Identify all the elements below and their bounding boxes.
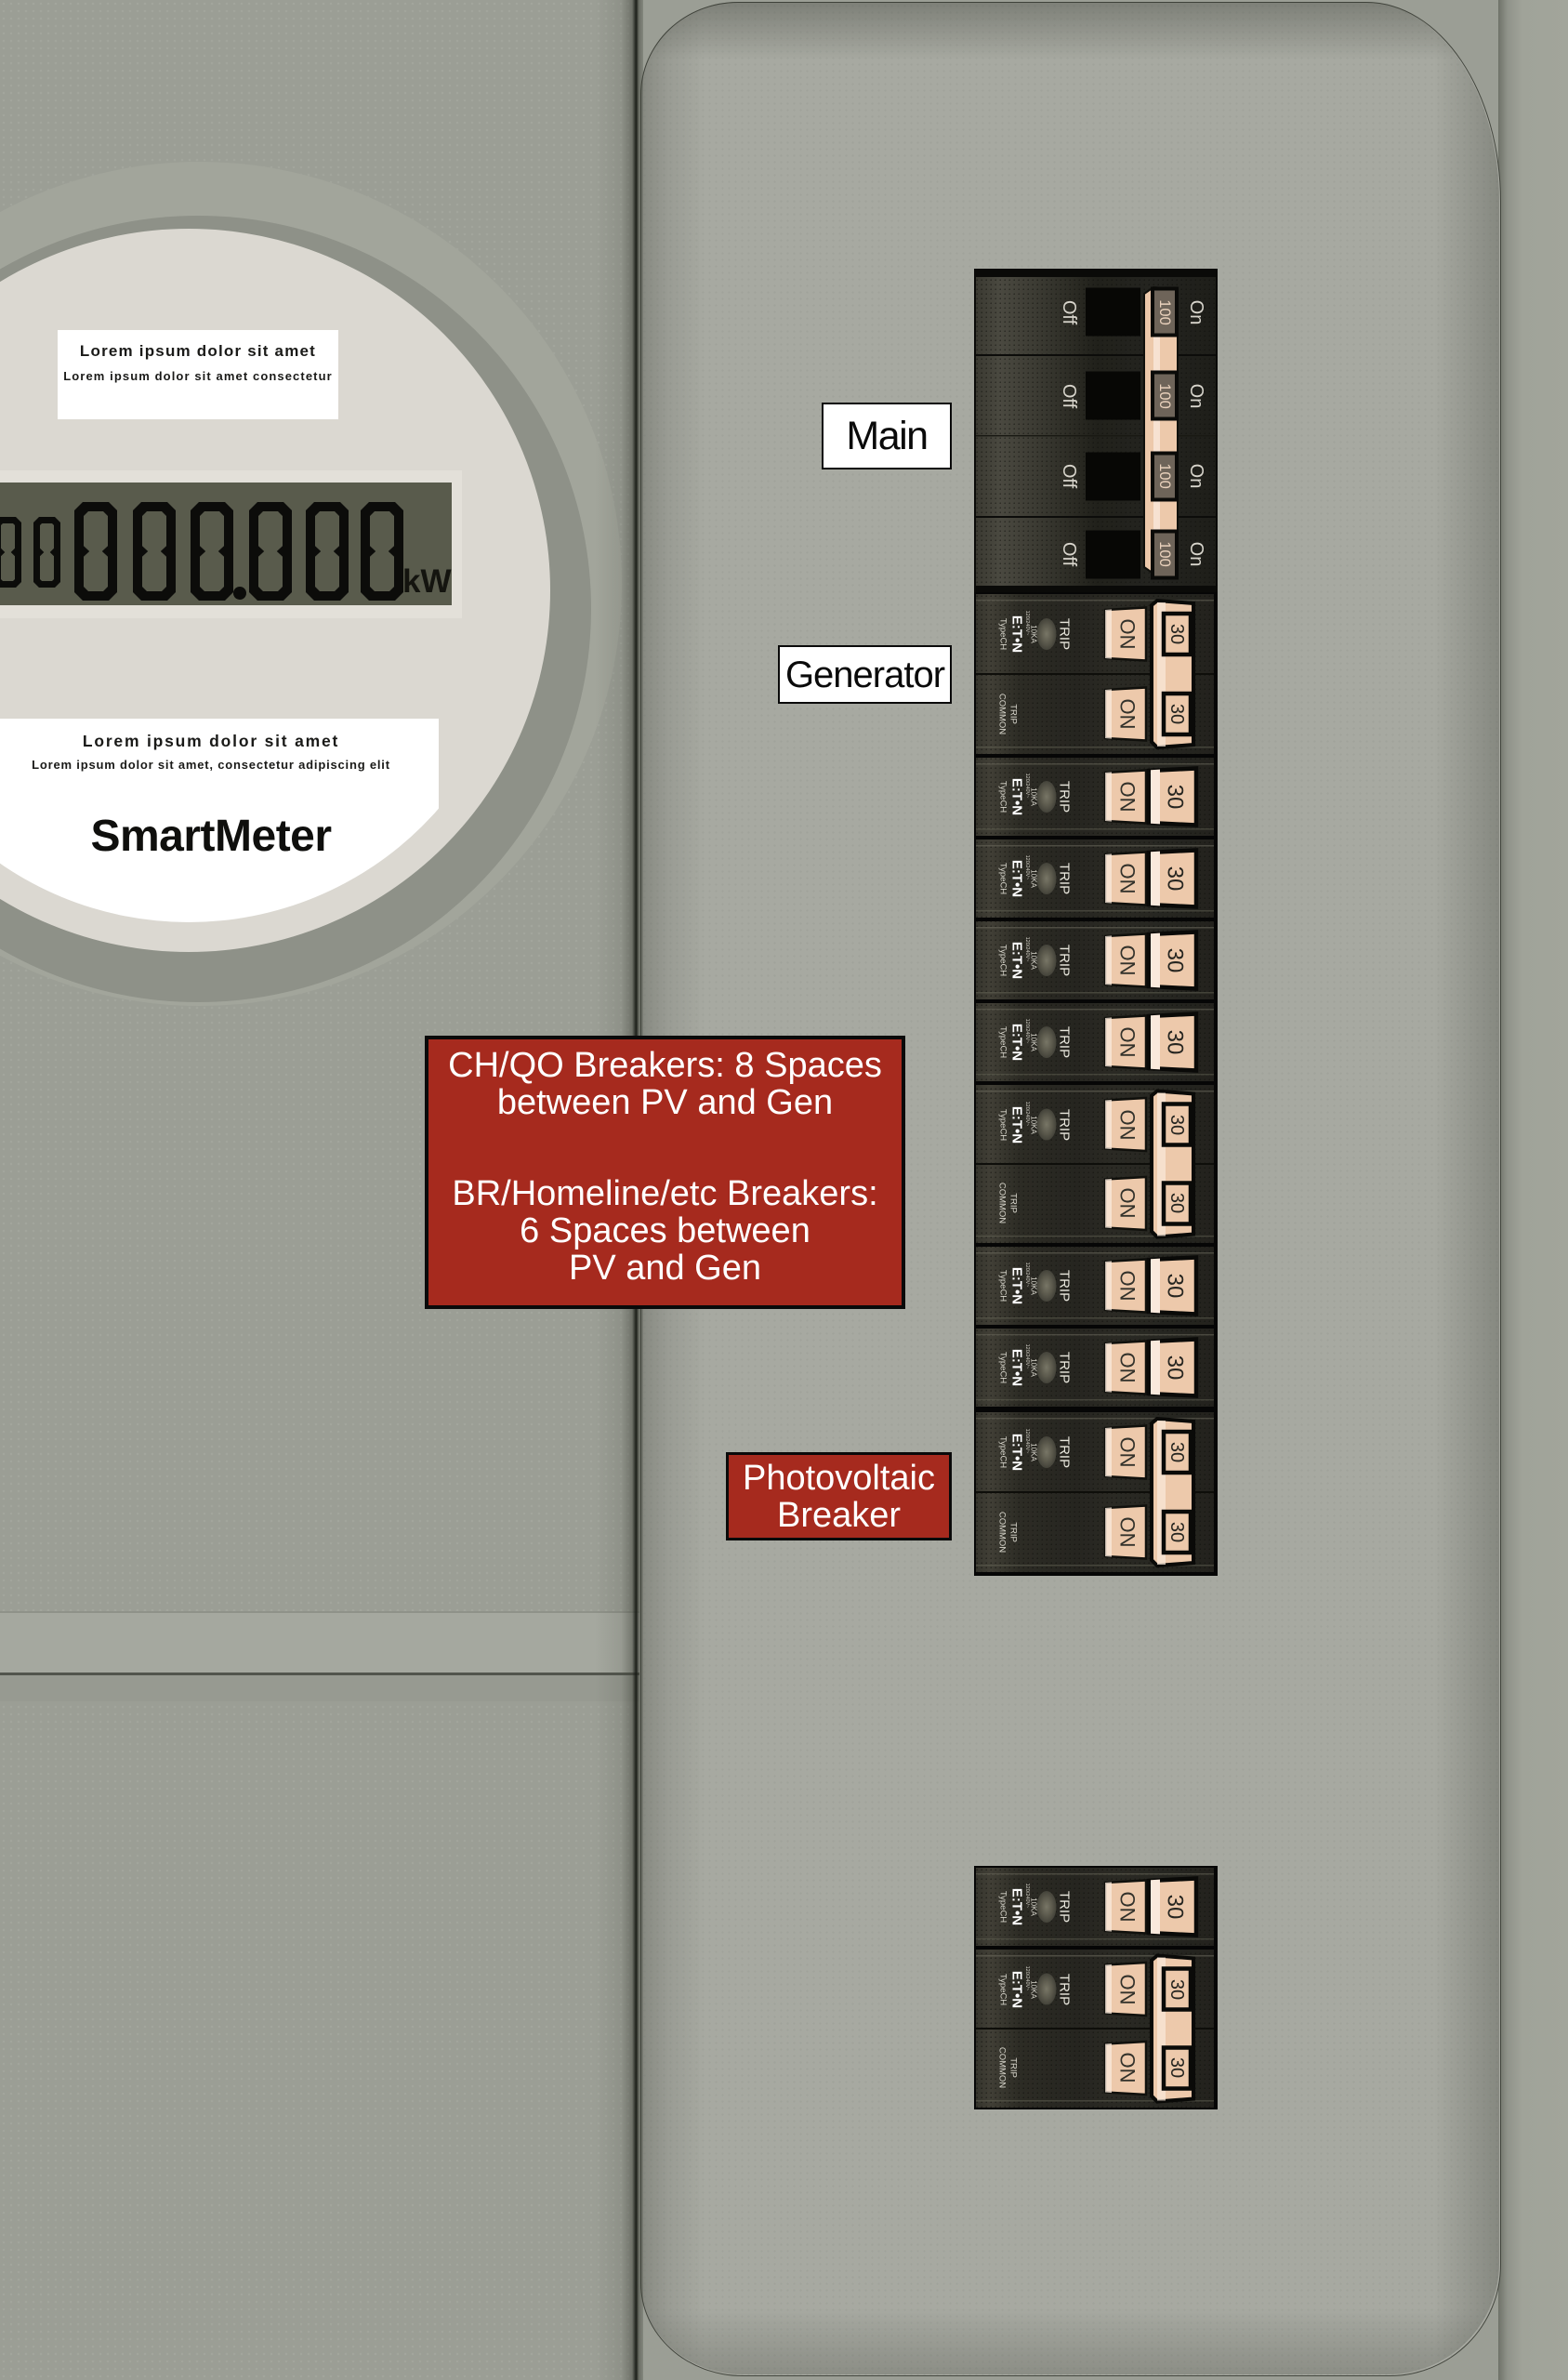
svg-text:120/240V~: 120/240V~	[1024, 773, 1030, 799]
svg-text:10KA: 10KA	[1030, 951, 1038, 970]
svg-text:On: On	[1186, 384, 1206, 409]
svg-text:TRIP: TRIP	[1008, 2057, 1019, 2078]
svg-text:10KA: 10KA	[1030, 1358, 1038, 1377]
svg-text:120/240V~: 120/240V~	[1024, 1019, 1030, 1044]
svg-text:30: 30	[1163, 1895, 1188, 1920]
svg-text:100: 100	[1156, 383, 1173, 409]
svg-text:10KA: 10KA	[1030, 1033, 1038, 1051]
svg-text:30: 30	[1163, 866, 1188, 892]
svg-text:TRIP: TRIP	[1057, 863, 1073, 894]
svg-text:30: 30	[1166, 1115, 1187, 1135]
svg-text:ON: ON	[1116, 1188, 1140, 1219]
svg-text:30: 30	[1166, 1442, 1187, 1462]
svg-text:30: 30	[1163, 948, 1188, 973]
svg-text:TRIP: TRIP	[1057, 781, 1073, 813]
svg-text:120/240V~: 120/240V~	[1024, 937, 1030, 962]
svg-text:30: 30	[1166, 1522, 1187, 1542]
svg-text:Off: Off	[1059, 542, 1079, 567]
svg-text:TRIP: TRIP	[1057, 1270, 1073, 1302]
svg-text:E:T•N: E:T•N	[1009, 1106, 1025, 1144]
svg-text:30: 30	[1166, 1979, 1187, 2000]
svg-text:ON: ON	[1116, 1110, 1140, 1141]
svg-text:TypeCH: TypeCH	[998, 1109, 1008, 1141]
svg-text:ON: ON	[1116, 1353, 1140, 1383]
svg-text:100: 100	[1156, 299, 1173, 325]
svg-text:Off: Off	[1059, 300, 1079, 325]
svg-text:30: 30	[1163, 785, 1188, 810]
svg-text:TRIP: TRIP	[1057, 1352, 1073, 1383]
svg-text:E:T•N: E:T•N	[1009, 778, 1025, 815]
svg-text:TypeCH: TypeCH	[998, 1026, 1008, 1058]
svg-text:TypeCH: TypeCH	[998, 1270, 1008, 1302]
svg-text:ON: ON	[1116, 1517, 1140, 1548]
svg-text:10KA: 10KA	[1030, 1116, 1038, 1134]
svg-text:TypeCH: TypeCH	[998, 618, 1008, 650]
svg-text:TRIP: TRIP	[1057, 1436, 1073, 1468]
svg-text:TypeCH: TypeCH	[998, 1352, 1008, 1383]
svg-text:ON: ON	[1116, 1437, 1140, 1468]
svg-text:ON: ON	[1116, 1027, 1140, 1058]
svg-text:120/240V~: 120/240V~	[1024, 1102, 1030, 1127]
svg-text:COMMON: COMMON	[997, 694, 1008, 734]
svg-text:TypeCH: TypeCH	[998, 945, 1008, 976]
svg-text:30: 30	[1163, 1274, 1188, 1299]
svg-text:COMMON: COMMON	[997, 1512, 1008, 1553]
svg-text:E:T•N: E:T•N	[1009, 860, 1025, 897]
svg-text:TRIP: TRIP	[1057, 618, 1073, 650]
svg-text:E:T•N: E:T•N	[1009, 615, 1025, 653]
svg-text:10KA: 10KA	[1030, 1276, 1038, 1295]
svg-text:E:T•N: E:T•N	[1009, 942, 1025, 979]
svg-text:TRIP: TRIP	[1057, 1891, 1073, 1923]
svg-text:100: 100	[1156, 463, 1173, 489]
svg-text:30: 30	[1166, 624, 1187, 644]
svg-text:10KA: 10KA	[1030, 1897, 1038, 1916]
svg-text:120/240V~: 120/240V~	[1024, 855, 1030, 880]
svg-text:ON: ON	[1116, 1975, 1140, 2005]
svg-text:ON: ON	[1116, 1271, 1140, 1302]
svg-text:100: 100	[1156, 541, 1173, 567]
svg-text:120/240V~: 120/240V~	[1024, 611, 1030, 636]
svg-text:E:T•N: E:T•N	[1009, 1349, 1025, 1386]
svg-text:E:T•N: E:T•N	[1009, 1434, 1025, 1471]
svg-text:TypeCH: TypeCH	[998, 863, 1008, 894]
svg-text:TRIP: TRIP	[1057, 1109, 1073, 1141]
svg-text:30: 30	[1166, 1193, 1187, 1213]
svg-text:10KA: 10KA	[1030, 869, 1038, 888]
svg-text:TypeCH: TypeCH	[998, 781, 1008, 813]
svg-text:30: 30	[1163, 1355, 1188, 1381]
svg-text:TRIP: TRIP	[1057, 1026, 1073, 1058]
svg-text:TRIP: TRIP	[1057, 1974, 1073, 2005]
svg-text:ON: ON	[1116, 699, 1140, 730]
svg-text:ON: ON	[1116, 2053, 1140, 2083]
svg-text:ON: ON	[1116, 945, 1140, 976]
svg-text:120/240V~: 120/240V~	[1024, 1884, 1030, 1909]
svg-text:COMMON: COMMON	[997, 1183, 1008, 1223]
svg-text:30: 30	[1166, 704, 1187, 724]
svg-text:ON: ON	[1116, 1892, 1140, 1923]
svg-text:On: On	[1186, 542, 1206, 567]
svg-text:10KA: 10KA	[1030, 1980, 1038, 1999]
svg-text:COMMON: COMMON	[997, 2047, 1008, 2088]
svg-text:E:T•N: E:T•N	[1009, 1267, 1025, 1304]
svg-text:30: 30	[1166, 2057, 1187, 2078]
svg-text:120/240V~: 120/240V~	[1024, 1429, 1030, 1454]
svg-text:120/240V~: 120/240V~	[1024, 1966, 1030, 1991]
svg-text:TRIP: TRIP	[1008, 1193, 1019, 1213]
svg-text:120/240V~: 120/240V~	[1024, 1344, 1030, 1369]
svg-text:TRIP: TRIP	[1008, 704, 1019, 724]
svg-text:ON: ON	[1116, 864, 1140, 894]
svg-text:10KA: 10KA	[1030, 625, 1038, 643]
svg-text:120/240V~: 120/240V~	[1024, 1263, 1030, 1288]
svg-text:E:T•N: E:T•N	[1009, 1024, 1025, 1061]
svg-text:10KA: 10KA	[1030, 1443, 1038, 1461]
svg-text:TRIP: TRIP	[1008, 1522, 1019, 1542]
svg-text:E:T•N: E:T•N	[1009, 1888, 1025, 1925]
svg-text:TRIP: TRIP	[1057, 945, 1073, 976]
svg-text:Off: Off	[1059, 384, 1079, 409]
svg-text:ON: ON	[1116, 619, 1140, 650]
svg-text:TypeCH: TypeCH	[998, 1891, 1008, 1923]
svg-text:ON: ON	[1116, 782, 1140, 813]
svg-text:10KA: 10KA	[1030, 787, 1038, 806]
svg-text:E:T•N: E:T•N	[1009, 1971, 1025, 2008]
svg-text:TypeCH: TypeCH	[998, 1974, 1008, 2005]
svg-text:On: On	[1186, 300, 1206, 325]
svg-text:On: On	[1186, 464, 1206, 489]
svg-text:TypeCH: TypeCH	[998, 1436, 1008, 1468]
svg-text:30: 30	[1163, 1030, 1188, 1055]
svg-text:Off: Off	[1059, 464, 1079, 489]
